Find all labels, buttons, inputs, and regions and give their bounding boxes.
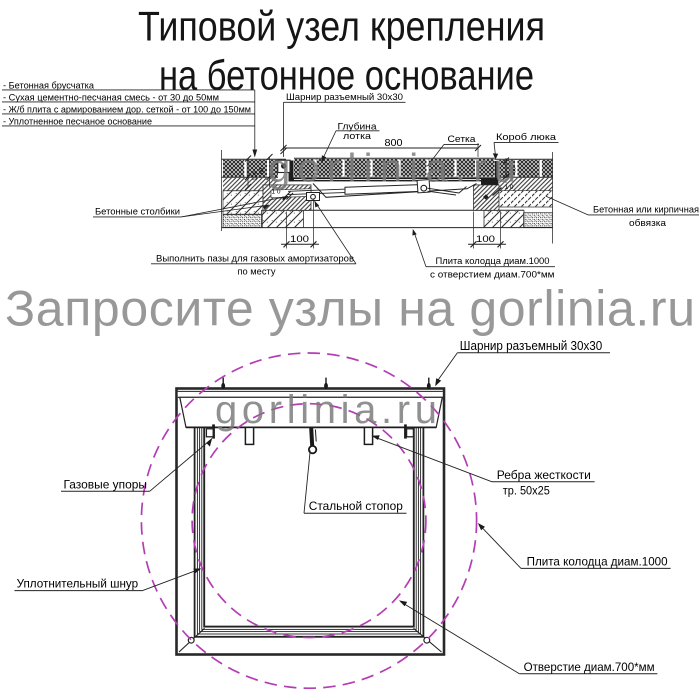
svg-text:Плита колодца диам.1000: Плита колодца диам.1000 — [436, 256, 550, 267]
svg-text:gorlinia.ru: gorlinia.ru — [215, 388, 437, 432]
svg-text:Бетонная или кирпичная: Бетонная или кирпичная — [593, 205, 699, 216]
svg-text:с отверстием диам.700*мм: с отверстием диам.700*мм — [430, 269, 555, 280]
svg-text:по месту: по месту — [238, 266, 276, 277]
svg-text:gorlinia.ru: gorlinia.ru — [268, 146, 516, 190]
svg-text:Газовые упоры: Газовые упоры — [64, 478, 148, 492]
svg-text:Шарнир разъемный 30х30: Шарнир разъемный 30х30 — [460, 339, 603, 353]
svg-text:Типовой узел крепления: Типовой узел крепления — [138, 3, 545, 50]
svg-text:Сетка: Сетка — [448, 134, 477, 145]
svg-text:Ребра жесткости: Ребра жесткости — [497, 468, 591, 482]
svg-text:100: 100 — [476, 234, 495, 245]
svg-text:Выполнить пазы для газовых амо: Выполнить пазы для газовых амортизаторов — [156, 253, 354, 264]
svg-text:тр. 50х25: тр. 50х25 — [503, 484, 550, 498]
svg-text:Запросите узлы на gorlinia.ru: Запросите узлы на gorlinia.ru — [5, 281, 695, 337]
svg-text:Шарнир разъемный 30х30: Шарнир разъемный 30х30 — [286, 92, 403, 103]
svg-text:Уплотнительный шнур: Уплотнительный шнур — [17, 576, 139, 590]
svg-text:Отверстие диам.700*мм: Отверстие диам.700*мм — [524, 660, 655, 674]
svg-text:Плита колодца диам.1000: Плита колодца диам.1000 — [527, 554, 668, 568]
svg-text:100: 100 — [290, 234, 309, 245]
svg-text:Бетонные столбики: Бетонные столбики — [95, 207, 180, 218]
svg-text:80: 80 — [260, 168, 266, 174]
svg-text:Короб люка: Короб люка — [496, 132, 557, 143]
svg-text:обвязка: обвязка — [629, 218, 667, 229]
svg-text:Стальной стопор: Стальной стопор — [309, 499, 403, 513]
svg-text:100: 100 — [253, 171, 259, 180]
svg-text:лотка: лотка — [343, 131, 372, 142]
